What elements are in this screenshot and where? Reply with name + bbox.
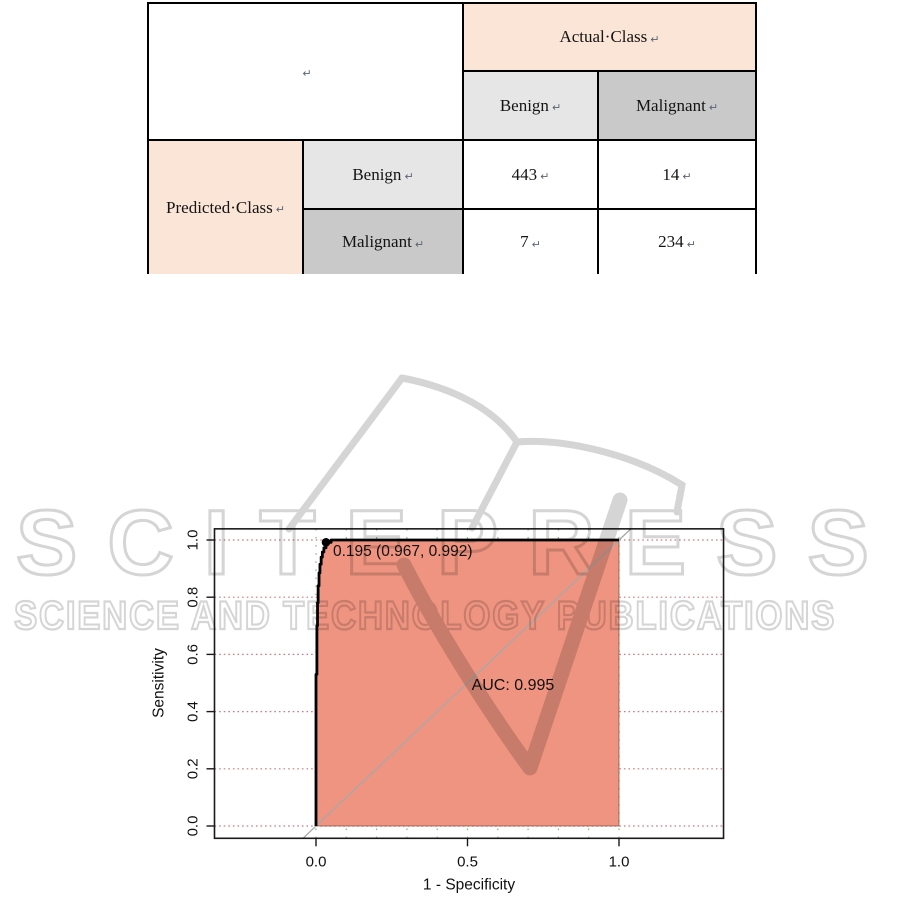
col-header-benign: Benign↵ xyxy=(464,72,599,141)
actual-class-label: Actual·Class xyxy=(559,27,647,47)
value-234: 234 xyxy=(658,232,684,252)
roc-threshold-point xyxy=(322,538,331,547)
value-14: 14 xyxy=(662,165,679,185)
table-value-fp: 7↵ xyxy=(464,210,599,274)
roc-auc-label: AUC: 0.995 xyxy=(472,677,555,694)
predicted-class-header: Predicted·Class↵ xyxy=(149,141,304,274)
roc-threshold-label: 0.195 (0.967, 0.992) xyxy=(333,543,473,560)
y-tick-label: 0.0 xyxy=(184,816,201,837)
paragraph-mark: ↵ xyxy=(709,101,718,114)
paragraph-mark: ↵ xyxy=(552,101,561,114)
row-header-benign: Benign↵ xyxy=(304,141,464,210)
paragraph-mark: ↵ xyxy=(404,170,413,183)
col-header-benign-label: Benign xyxy=(500,96,549,116)
table-value-tp: 234↵ xyxy=(599,210,757,274)
predicted-class-label: Predicted·Class xyxy=(166,198,273,218)
paragraph-mark: ↵ xyxy=(276,203,285,216)
row-header-benign-label: Benign xyxy=(352,165,401,185)
col-header-malignant: Malignant↵ xyxy=(599,72,757,141)
y-tick-label: 0.4 xyxy=(184,701,201,722)
y-tick-label: 0.8 xyxy=(184,587,201,608)
value-443: 443 xyxy=(512,165,538,185)
paragraph-mark: ↵ xyxy=(540,170,549,183)
paragraph-mark: ↵ xyxy=(302,67,311,80)
paragraph-mark: ↵ xyxy=(650,33,659,46)
paragraph-mark: ↵ xyxy=(687,238,696,251)
x-axis-title: 1 - Specificity xyxy=(423,876,515,893)
row-header-malignant-label: Malignant xyxy=(342,232,412,252)
y-tick-label: 0.2 xyxy=(184,758,201,779)
table-value-tn: 443↵ xyxy=(464,141,599,210)
value-7: 7 xyxy=(520,232,529,252)
table-value-fn: 14↵ xyxy=(599,141,757,210)
paper-page: 0.195 (0.967, 0.992)AUC: 0.9950.00.51.00… xyxy=(0,0,901,905)
paragraph-mark: ↵ xyxy=(415,238,424,251)
x-tick-label: 1.0 xyxy=(609,853,630,870)
y-tick-label: 1.0 xyxy=(184,530,201,551)
paragraph-mark: ↵ xyxy=(532,238,541,251)
table-corner-cell: ↵ xyxy=(149,4,464,141)
actual-class-header: Actual·Class↵ xyxy=(464,4,757,72)
confusion-matrix-table: ↵ Actual·Class↵ Benign↵ Malignant↵ Predi… xyxy=(147,2,757,274)
y-axis-title: Sensitivity xyxy=(150,648,167,718)
y-tick-label: 0.6 xyxy=(184,644,201,665)
x-tick-label: 0.5 xyxy=(457,853,478,870)
x-tick-label: 0.0 xyxy=(306,853,327,870)
row-header-malignant: Malignant↵ xyxy=(304,210,464,274)
paragraph-mark: ↵ xyxy=(682,170,691,183)
col-header-malignant-label: Malignant xyxy=(636,96,706,116)
